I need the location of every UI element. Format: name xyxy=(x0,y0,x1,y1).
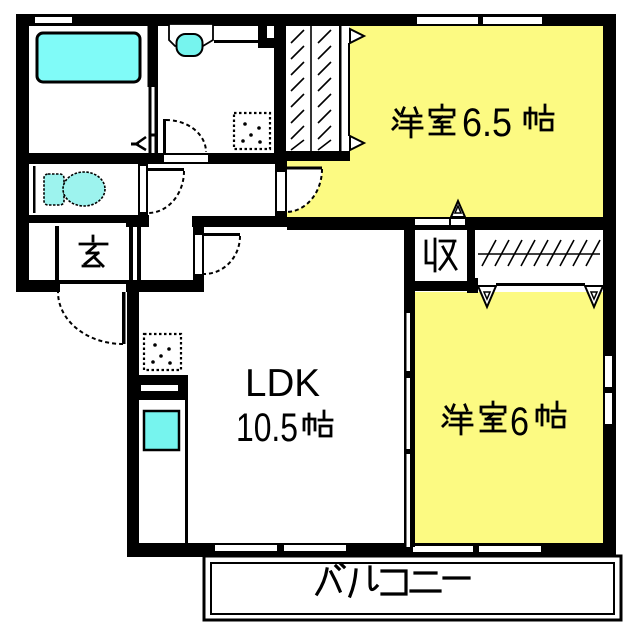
svg-text:10.5: 10.5 xyxy=(236,406,298,450)
svg-text:6: 6 xyxy=(510,400,529,444)
svg-text:LDK: LDK xyxy=(245,362,320,405)
svg-text:6.5: 6.5 xyxy=(462,101,512,145)
